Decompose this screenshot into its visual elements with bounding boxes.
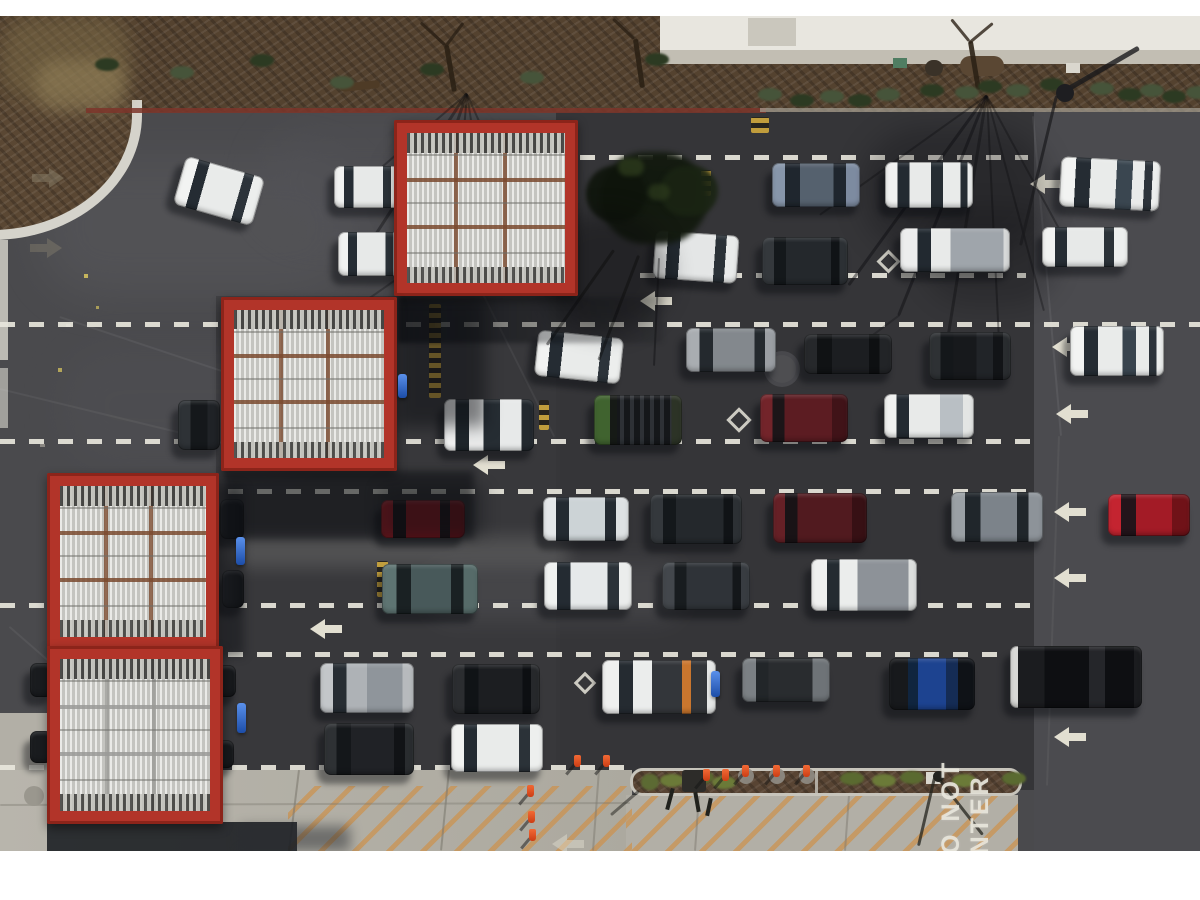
canopy-purlin	[60, 507, 206, 509]
orange-bollard	[742, 765, 750, 778]
canopy-slat-fringe-top	[60, 486, 206, 506]
orange-bollard	[773, 765, 781, 778]
car-white-pickup	[811, 559, 917, 611]
car-dark-suv	[650, 494, 742, 544]
speed-bump	[539, 400, 549, 430]
shrub	[1140, 84, 1164, 97]
canopy-shadow	[240, 826, 350, 851]
lane-arrow	[310, 619, 344, 639]
car-body	[889, 658, 975, 710]
canopy-purlin	[60, 729, 210, 731]
canopy-beam	[60, 752, 210, 756]
car-white-sedan	[544, 562, 632, 610]
canopy-purlin	[234, 427, 384, 429]
shrub	[660, 774, 684, 787]
cone-body	[703, 769, 710, 781]
arrow-head	[1056, 404, 1071, 424]
red-curb	[86, 108, 766, 113]
canopy-purlin	[407, 252, 565, 254]
shrub	[1002, 772, 1026, 785]
car-green-jeep	[594, 395, 682, 445]
car-body	[1010, 646, 1142, 708]
shrub	[95, 58, 119, 71]
car-body	[320, 663, 414, 713]
canopy-purlin	[234, 378, 384, 380]
lane-arrow	[1056, 404, 1090, 424]
car-white-pickup	[900, 228, 1010, 272]
shrub	[758, 88, 782, 101]
orange-bollard	[722, 769, 730, 782]
canopy-beam	[60, 705, 210, 709]
cone-body	[529, 829, 536, 841]
shrub	[330, 76, 354, 89]
concrete-manhole	[24, 786, 44, 806]
lane-arrow	[1054, 568, 1088, 588]
car-black-suv	[929, 332, 1011, 380]
shrub	[955, 86, 979, 99]
canopy-shadow	[218, 486, 244, 656]
car-silver-suv	[320, 663, 414, 713]
car-white	[1042, 227, 1128, 267]
canopy-roof	[234, 310, 384, 458]
orange-bollard	[803, 765, 811, 778]
car-body	[334, 166, 402, 208]
drive-through-canopy-3	[47, 473, 219, 650]
car-white-suv	[451, 724, 543, 772]
cone-body	[722, 769, 729, 781]
planter-seam	[815, 768, 818, 796]
shrub	[820, 90, 844, 103]
pavement-text-enter: ENTER	[967, 794, 993, 851]
canopy-purlin	[60, 680, 210, 682]
car-light-sedan	[543, 497, 629, 541]
canopy-slat-fringe-bottom	[407, 267, 565, 284]
car-body	[772, 163, 860, 207]
car-body	[650, 494, 742, 544]
lane-arrow-faint	[552, 834, 586, 851]
arrow-head	[49, 168, 64, 188]
canopy-purlin	[407, 154, 565, 156]
cone-body	[773, 765, 780, 777]
car-body	[811, 559, 917, 611]
car-black-van	[1010, 646, 1142, 708]
car-black-suv	[762, 237, 848, 285]
car-body	[451, 724, 543, 772]
car-body	[1070, 326, 1164, 376]
car-body	[324, 723, 414, 775]
canopy-beam	[60, 531, 206, 535]
arrow-tail	[566, 840, 584, 848]
arrow-tail	[30, 244, 48, 252]
car-body	[686, 328, 776, 372]
car-body	[382, 564, 478, 614]
planter-sapling	[641, 774, 659, 790]
car-body	[762, 237, 848, 285]
canopy-purlin	[407, 202, 565, 204]
arrow-tail	[487, 461, 505, 469]
cone-body	[528, 811, 535, 823]
arrow-tail	[1068, 733, 1086, 741]
canopy-slat-fringe-bottom	[60, 620, 206, 637]
mulch-bulge	[960, 56, 1004, 76]
car-body	[543, 497, 629, 541]
shrub	[170, 66, 194, 79]
car-white-sedan	[1059, 156, 1161, 211]
green-utility-box	[893, 58, 907, 68]
car-white-sedan	[1070, 326, 1164, 376]
blue-bollard	[398, 374, 407, 398]
ghost-arrow	[30, 168, 64, 188]
leafy-tree-dapple	[648, 184, 670, 200]
shrub	[872, 774, 896, 787]
car-gray-suv-darktop	[742, 658, 830, 702]
canopy-shadow	[398, 297, 663, 343]
shrub	[840, 772, 864, 785]
car-black-suv	[452, 664, 540, 714]
blue-bollard	[711, 671, 720, 697]
car-maroon-suv	[760, 394, 848, 442]
page: DO NOTENTER	[0, 0, 1200, 900]
car-bluegray-sedan	[772, 163, 860, 207]
shrub	[848, 94, 872, 107]
car-gray-suv	[686, 328, 776, 372]
car-teal-sedan	[382, 564, 478, 614]
car-body	[602, 660, 716, 714]
cone-body	[803, 765, 810, 777]
car-body	[452, 664, 540, 714]
shrub	[250, 54, 274, 67]
canopy-roof	[407, 133, 565, 283]
curb-strip	[0, 368, 8, 428]
canopy-beam	[407, 225, 565, 229]
shrub	[876, 88, 900, 101]
shrub	[1090, 82, 1114, 95]
shrub	[1162, 90, 1186, 103]
canopy-slat-fringe-top	[234, 310, 384, 329]
car-body	[929, 332, 1011, 380]
car-body	[760, 394, 848, 442]
canopy-beam	[234, 400, 384, 404]
arrow-tail	[1068, 508, 1086, 516]
car-white-suv	[334, 166, 402, 208]
shrub	[900, 771, 924, 784]
utility-pad	[748, 18, 796, 46]
blue-bollard	[237, 703, 246, 733]
canopy-shadow	[380, 486, 485, 536]
car-body	[951, 492, 1043, 542]
orange-bollard	[703, 769, 711, 782]
car-dark-suv-partial	[178, 400, 220, 450]
car-body	[884, 394, 974, 438]
cone-body	[742, 765, 749, 777]
car-body	[662, 562, 750, 610]
leafy-tree-dapple	[618, 158, 644, 176]
traffic-cone	[527, 785, 535, 798]
shrub	[520, 71, 544, 84]
shrub	[790, 94, 814, 107]
blue-bollard	[236, 537, 245, 565]
canopy-roof	[60, 659, 210, 811]
yellow-speck	[84, 274, 88, 278]
canopy-slat-fringe-top	[407, 133, 565, 153]
traffic-cone	[528, 811, 536, 824]
car-body	[1042, 227, 1128, 267]
arrow-tail	[1068, 574, 1086, 582]
sidewalk-overexposed	[660, 16, 1200, 52]
canopy-purlin	[60, 779, 210, 781]
speed-bump	[751, 117, 769, 133]
car-body	[178, 400, 220, 450]
yellow-speck	[58, 368, 62, 372]
canopy-slat-fringe-bottom	[60, 794, 210, 811]
paint-speck	[40, 444, 45, 447]
car-body	[594, 395, 682, 445]
car-white-suv	[884, 394, 974, 438]
arrow-tail	[324, 625, 342, 633]
canopy-beam	[60, 578, 206, 582]
drive-through-canopy-4	[47, 646, 223, 824]
car-darkred-suv	[773, 493, 867, 543]
ghost-arrow	[28, 238, 62, 258]
shrub	[978, 80, 1002, 93]
lane-line-7	[228, 652, 1032, 657]
arrow-head	[1054, 727, 1069, 747]
canopy-beam	[407, 178, 565, 182]
pavement-text-do-not: DO NOT	[938, 789, 964, 851]
car-body	[1108, 494, 1190, 536]
car-body	[885, 162, 973, 208]
car-body	[900, 228, 1010, 272]
arrow-head	[1054, 568, 1069, 588]
canopy-beam	[234, 354, 384, 358]
arrow-head	[1054, 502, 1069, 522]
light-pole-base	[1056, 84, 1074, 102]
shrub	[920, 84, 944, 97]
lane-arrow	[1054, 502, 1088, 522]
arrow-head	[310, 619, 325, 639]
white-pad	[1066, 63, 1080, 73]
arrow-head	[47, 238, 62, 258]
car-body	[804, 334, 892, 374]
car-white-pickup-open	[602, 660, 716, 714]
lane-arrow	[1054, 727, 1088, 747]
car-darkgray-suv	[662, 562, 750, 610]
boulder	[925, 60, 943, 76]
canopy-roof	[60, 486, 206, 637]
car-body	[773, 493, 867, 543]
shrub	[645, 53, 669, 66]
car-red-coupe	[1108, 494, 1190, 536]
arrow-tail	[32, 174, 50, 182]
car-black-suv	[324, 723, 414, 775]
cone-body	[527, 785, 534, 797]
arrow-tail	[1070, 410, 1088, 418]
car-body	[742, 658, 830, 702]
canopy-slat-fringe-bottom	[234, 442, 384, 458]
canopy-purlin	[60, 555, 206, 557]
shrub	[1118, 88, 1142, 101]
yellow-speck	[96, 306, 99, 309]
car-body	[544, 562, 632, 610]
car-blue	[889, 658, 975, 710]
canopy-slat-fringe-top	[60, 659, 210, 679]
car-black-sedan	[804, 334, 892, 374]
shrub	[1006, 84, 1030, 97]
traffic-cone	[529, 829, 537, 842]
car-gray-sedan	[951, 492, 1043, 542]
drive-through-canopy-2	[221, 297, 397, 471]
drive-through-canopy-1	[394, 120, 578, 296]
canopy-purlin	[234, 331, 384, 333]
canopy-purlin	[60, 605, 206, 607]
car-white-suv	[885, 162, 973, 208]
car-body	[1059, 156, 1161, 211]
curb-strip	[0, 240, 8, 360]
aerial-photo: DO NOTENTER	[0, 16, 1200, 851]
shrub	[420, 63, 444, 76]
arrow-head	[552, 834, 567, 851]
